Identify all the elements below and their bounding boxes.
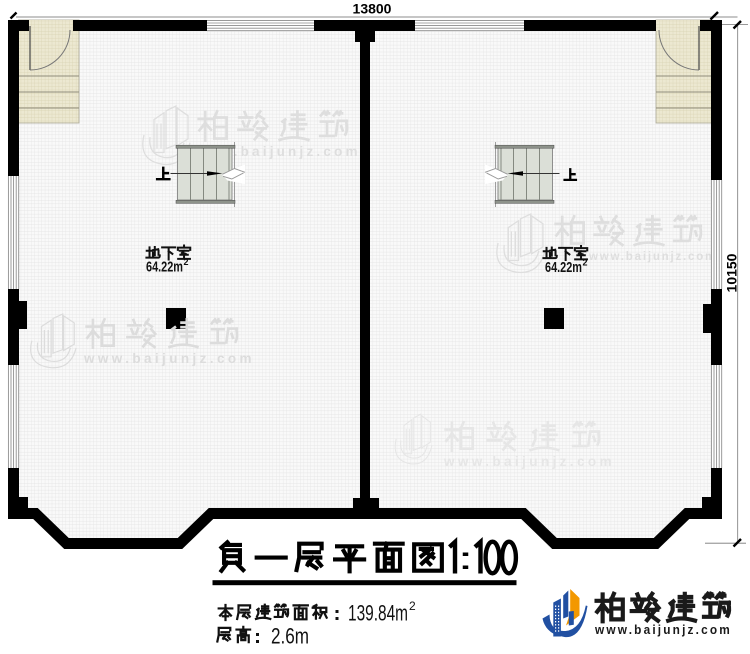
svg-text:139.84m: 139.84m	[348, 601, 408, 626]
svg-text:64.22m: 64.22m	[146, 260, 183, 276]
svg-text:2: 2	[583, 258, 588, 268]
svg-text:www.baijunjz.com: www.baijunjz.com	[594, 622, 732, 637]
svg-text:2: 2	[409, 599, 416, 613]
svg-text:www.baijunjz.com: www.baijunjz.com	[588, 251, 717, 263]
svg-text:10150: 10150	[724, 253, 740, 292]
svg-text:www.baijunjz.com: www.baijunjz.com	[83, 351, 255, 366]
svg-text:www.baijunjz.com: www.baijunjz.com	[443, 454, 615, 469]
svg-text:13800: 13800	[353, 1, 392, 17]
svg-text:64.22m: 64.22m	[545, 260, 582, 276]
svg-text:2.6m: 2.6m	[271, 624, 309, 649]
svg-text:2: 2	[184, 257, 189, 267]
